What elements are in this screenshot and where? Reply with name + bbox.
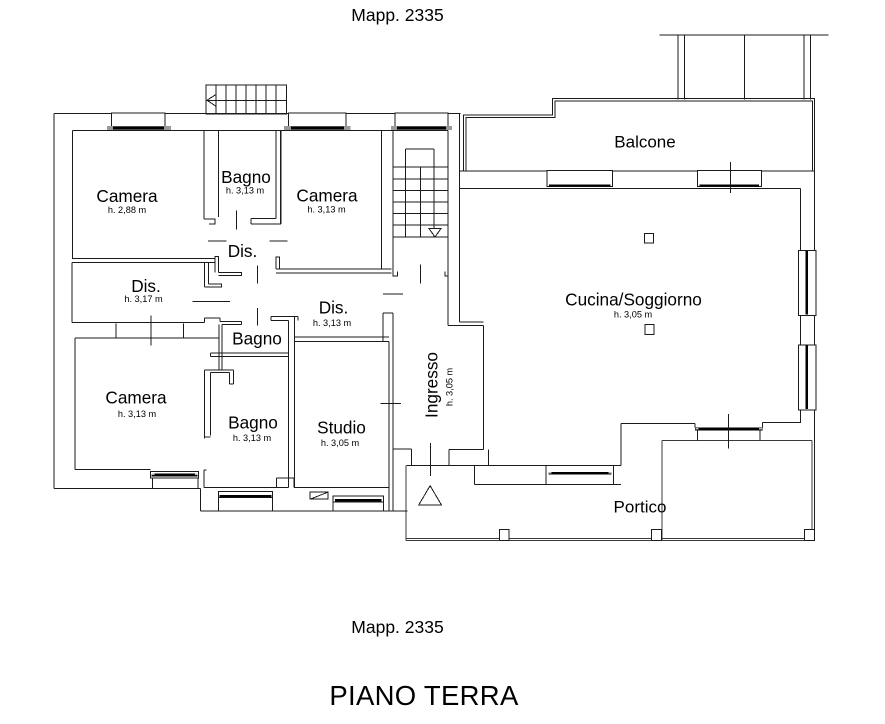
svg-text:PIANO TERRA: PIANO TERRA [329, 680, 519, 711]
svg-text:Mapp. 2335: Mapp. 2335 [351, 617, 443, 637]
svg-text:h. 3,05 m: h. 3,05 m [321, 438, 360, 448]
svg-text:Camera: Camera [296, 186, 358, 206]
svg-text:Ingresso: Ingresso [422, 352, 442, 418]
svg-text:Portico: Portico [614, 498, 667, 517]
svg-text:h. 3,13 m: h. 3,13 m [226, 186, 265, 196]
svg-text:Cucina/Soggiorno: Cucina/Soggiorno [565, 290, 702, 310]
svg-text:Dis.: Dis. [131, 276, 161, 296]
svg-text:Balcone: Balcone [614, 133, 675, 152]
svg-text:Camera: Camera [105, 388, 167, 408]
svg-text:h. 3,05 m: h. 3,05 m [445, 368, 455, 407]
svg-text:Mapp. 2335: Mapp. 2335 [351, 5, 443, 25]
svg-text:Bagno: Bagno [228, 413, 278, 433]
svg-text:h. 2,88 m: h. 2,88 m [108, 205, 147, 215]
svg-text:h. 3,17 m: h. 3,17 m [124, 294, 163, 304]
svg-text:h. 3,13 m: h. 3,13 m [118, 409, 157, 419]
svg-text:h. 3,05 m: h. 3,05 m [614, 310, 653, 320]
svg-text:Studio: Studio [317, 418, 366, 438]
svg-text:Dis.: Dis. [228, 241, 258, 261]
svg-text:Dis.: Dis. [319, 298, 349, 318]
svg-text:h. 3,13 m: h. 3,13 m [313, 318, 352, 328]
svg-text:Camera: Camera [96, 186, 158, 206]
svg-text:Bagno: Bagno [232, 329, 282, 349]
svg-text:Bagno: Bagno [221, 167, 271, 187]
svg-text:h. 3,13 m: h. 3,13 m [307, 205, 346, 215]
svg-text:h. 3,13 m: h. 3,13 m [233, 433, 272, 443]
